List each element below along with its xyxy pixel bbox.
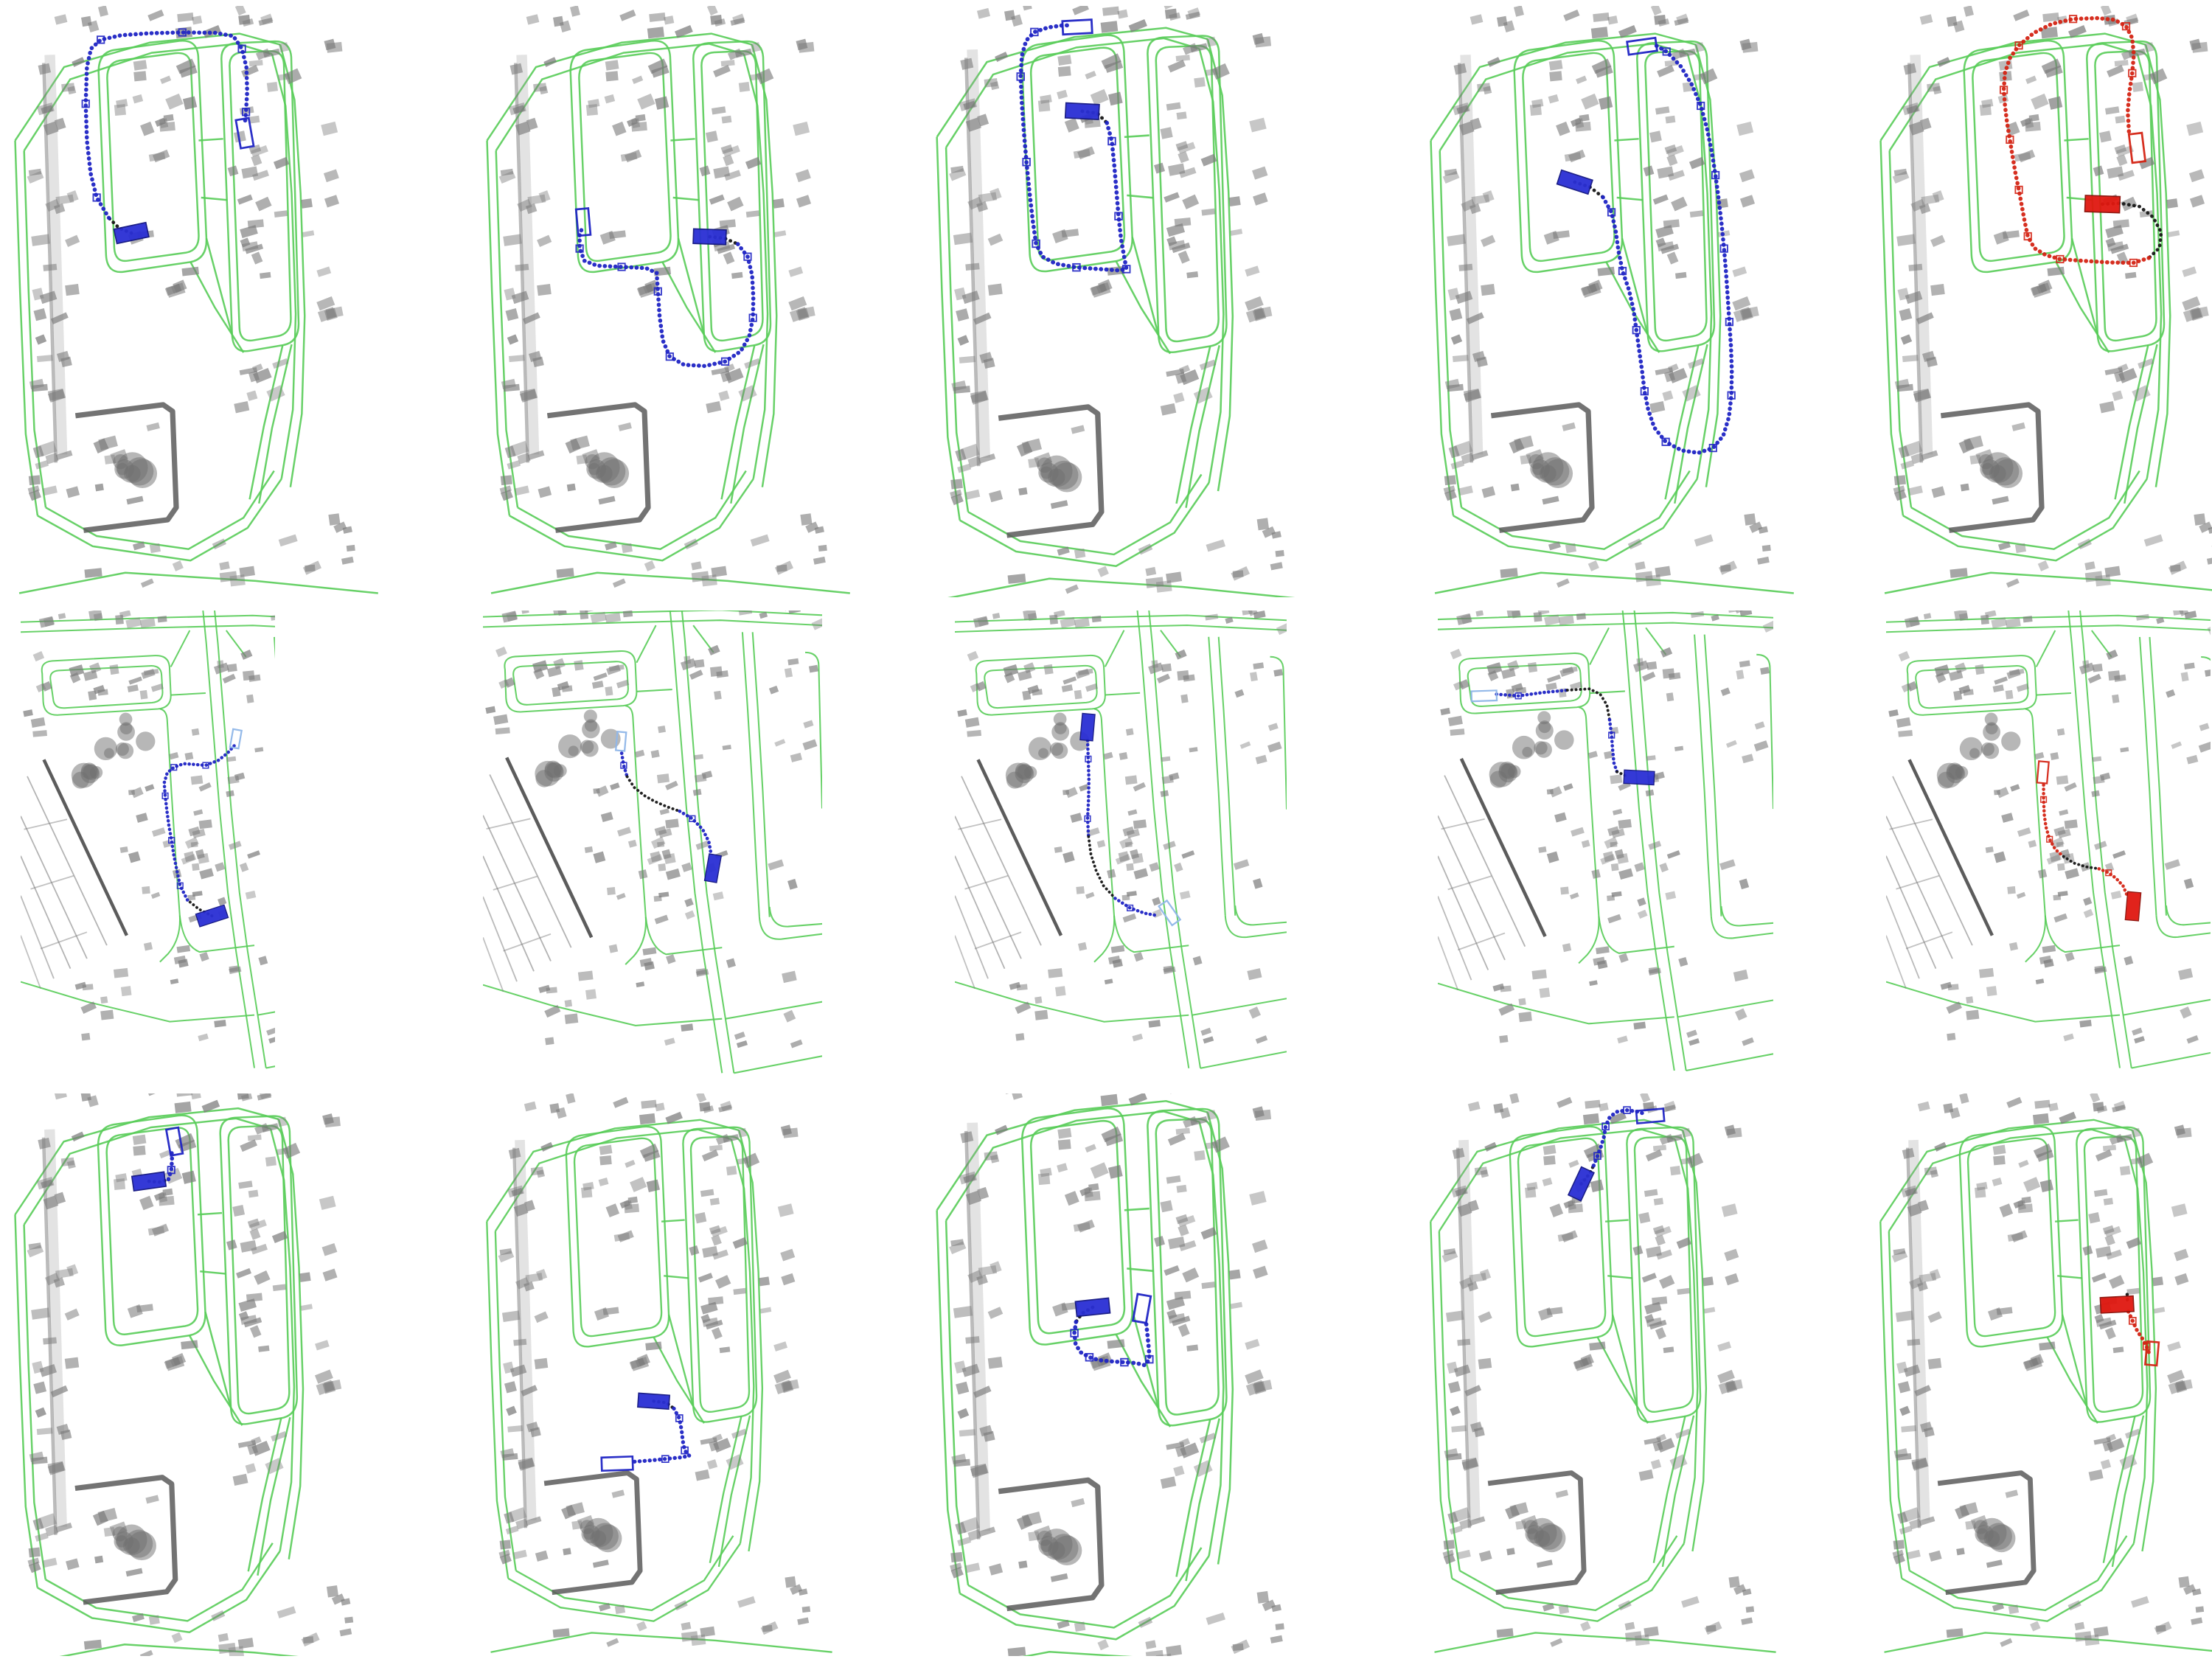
trajectory-map-panel-r1c2 — [955, 611, 1287, 1091]
trajectory-map-panel-r1c4 — [1886, 611, 2211, 1091]
map-canvas-r2c2 — [933, 1093, 1349, 1656]
trajectory-map-panel-r2c0 — [11, 1093, 417, 1656]
map-canvas-r0c3 — [1427, 6, 1810, 597]
trajectory-map-panel-r1c3 — [1438, 611, 1773, 1091]
map-canvas-r2c0 — [11, 1093, 417, 1656]
trajectory-map-panel-r0c1 — [483, 6, 870, 597]
map-canvas-r1c1 — [483, 611, 822, 1091]
map-canvas-r1c3 — [1438, 611, 1773, 1091]
trajectory-map-panel-r1c0 — [21, 611, 275, 1091]
map-canvas-r0c0 — [11, 6, 417, 597]
map-canvas-r2c1 — [483, 1093, 870, 1656]
trajectory-map-panel-r2c1 — [483, 1093, 870, 1656]
map-canvas-r2c3 — [1427, 1093, 1810, 1656]
map-canvas-r0c1 — [483, 6, 870, 597]
trajectory-map-panel-r2c2 — [933, 1093, 1349, 1656]
trajectory-map-panel-r0c0 — [11, 6, 417, 597]
trajectory-map-panel-r0c4 — [1877, 6, 2212, 597]
map-canvas-r0c2 — [933, 6, 1349, 597]
map-canvas-r2c4 — [1877, 1093, 2212, 1656]
trajectory-map-panel-r0c2 — [933, 6, 1349, 597]
figure-grid — [0, 0, 2212, 1659]
map-canvas-r1c2 — [955, 611, 1287, 1091]
trajectory-map-panel-r2c3 — [1427, 1093, 1810, 1656]
map-canvas-r0c4 — [1877, 6, 2212, 597]
map-canvas-r1c4 — [1886, 611, 2211, 1091]
trajectory-map-panel-r0c3 — [1427, 6, 1810, 597]
trajectory-map-panel-r1c1 — [483, 611, 822, 1091]
trajectory-map-panel-r2c4 — [1877, 1093, 2212, 1656]
map-canvas-r1c0 — [21, 611, 275, 1091]
